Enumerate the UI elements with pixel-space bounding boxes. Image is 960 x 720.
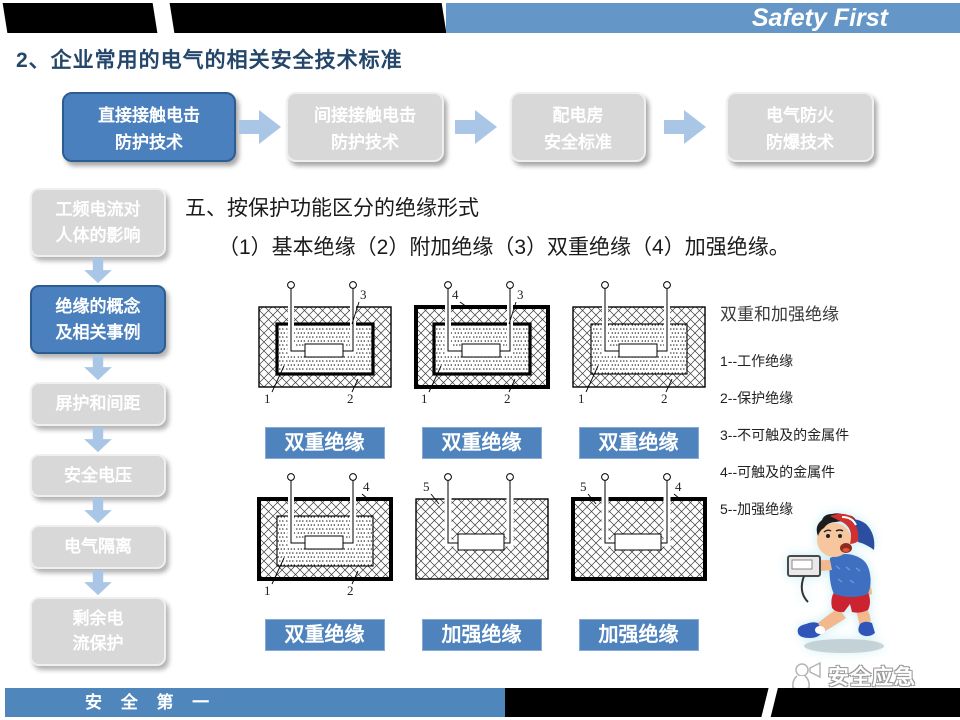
insulation-cross-section: 4 1 2 bbox=[255, 471, 395, 599]
insulation-diagram-grid: 3 1 2 双重绝缘 4 3 bbox=[246, 279, 717, 663]
svg-text:1: 1 bbox=[421, 391, 428, 406]
svg-text:1: 1 bbox=[578, 391, 585, 406]
sidebar-nav: 工频电流对 人体的影响 绝缘的概念 及相关事例 屏护和间距 安全电压 电气隔离 bbox=[30, 188, 166, 666]
header-black-bar-left bbox=[3, 3, 158, 33]
diagram-double-insulation-4: 4 1 2 双重绝缘 bbox=[246, 471, 403, 663]
section-heading: 五、按保护功能区分的绝缘形式 bbox=[185, 192, 479, 222]
legend-item: 2--保护绝缘 bbox=[720, 388, 849, 408]
sidebar-item-electrical-isolation[interactable]: 电气隔离 bbox=[30, 525, 166, 569]
diagram-caption: 双重绝缘 bbox=[422, 427, 542, 459]
flow-step-direct-contact[interactable]: 直接接触电击 防护技术 bbox=[62, 92, 236, 162]
flow-step-indirect-contact[interactable]: 间接接触电击 防护技术 bbox=[286, 92, 444, 162]
flow-arrow-icon bbox=[444, 108, 510, 146]
flow-arrow-icon bbox=[236, 108, 286, 146]
diagram-reinforced-insulation-1: 5 加强绝缘 bbox=[403, 471, 560, 663]
diagram-caption: 双重绝缘 bbox=[579, 427, 699, 459]
svg-text:4: 4 bbox=[363, 479, 370, 494]
svg-text:4: 4 bbox=[675, 479, 682, 494]
sidebar-item-residual-current[interactable]: 剩余电 流保护 bbox=[30, 597, 166, 666]
svg-text:5: 5 bbox=[580, 479, 587, 494]
sidebar-item-safe-voltage[interactable]: 安全电压 bbox=[30, 454, 166, 498]
legend-item: 4--可触及的金属件 bbox=[720, 462, 849, 482]
diagram-double-insulation-1: 3 1 2 双重绝缘 bbox=[246, 279, 403, 471]
diagram-double-insulation-2: 4 3 1 2 双重绝缘 bbox=[403, 279, 560, 471]
flow-arrow-icon bbox=[646, 108, 726, 146]
sidebar-item-shielding-clearance[interactable]: 屏护和间距 bbox=[30, 382, 166, 426]
insulation-legend: 双重和加强绝缘 1--工作绝缘 2--保护绝缘 3--不可触及的金属件 4--可… bbox=[720, 300, 849, 536]
diagram-caption: 双重绝缘 bbox=[265, 619, 385, 651]
top-flow: 直接接触电击 防护技术 间接接触电击 防护技术 配电房 安全标准 电气防火 防爆… bbox=[62, 92, 874, 162]
svg-text:2: 2 bbox=[504, 391, 511, 406]
sidebar-item-insulation-concept[interactable]: 绝缘的概念 及相关事例 bbox=[30, 285, 166, 354]
insulation-cross-section: 4 3 1 2 bbox=[412, 279, 552, 407]
section-subheading: （1）基本绝缘（2）附加绝缘（3）双重绝缘（4）加强绝缘。 bbox=[218, 231, 790, 261]
arrow-down-icon bbox=[81, 354, 115, 382]
flow-step-fire-explosion[interactable]: 电气防火 防爆技术 bbox=[726, 92, 874, 162]
brand-banner: Safety First bbox=[446, 3, 960, 33]
svg-text:2: 2 bbox=[347, 391, 354, 406]
arrow-down-icon bbox=[81, 426, 115, 454]
diagram-caption: 双重绝缘 bbox=[265, 427, 385, 459]
insulation-cross-section: 1 2 bbox=[569, 279, 709, 407]
legend-item: 3--不可触及的金属件 bbox=[720, 425, 849, 445]
sidebar-item-frequency-current[interactable]: 工频电流对 人体的影响 bbox=[30, 188, 166, 257]
footer-slogan-bar: 安 全 第 一 bbox=[5, 688, 505, 717]
svg-text:1: 1 bbox=[264, 391, 271, 406]
insulation-cross-section: 3 1 2 bbox=[255, 279, 395, 407]
diagram-reinforced-insulation-2: 5 4 加强绝缘 bbox=[560, 471, 717, 663]
svg-text:4: 4 bbox=[452, 287, 459, 302]
insulation-cross-section: 5 bbox=[412, 471, 552, 599]
arrow-down-icon bbox=[81, 569, 115, 597]
diagram-caption: 加强绝缘 bbox=[422, 619, 542, 651]
svg-text:3: 3 bbox=[517, 287, 524, 302]
legend-item: 1--工作绝缘 bbox=[720, 351, 849, 371]
svg-text:5: 5 bbox=[423, 479, 430, 494]
watermark-text: 安全应急 bbox=[828, 661, 916, 691]
flow-step-power-room[interactable]: 配电房 安全标准 bbox=[510, 92, 646, 162]
svg-text:2: 2 bbox=[347, 583, 354, 598]
footer-black-bar bbox=[505, 688, 960, 717]
running-boy-cartoon bbox=[786, 512, 898, 667]
svg-text:3: 3 bbox=[360, 287, 367, 302]
insulation-cross-section: 5 4 bbox=[569, 471, 709, 599]
svg-text:1: 1 bbox=[264, 583, 271, 598]
diagram-caption: 加强绝缘 bbox=[579, 619, 699, 651]
diagram-double-insulation-3: 1 2 双重绝缘 bbox=[560, 279, 717, 471]
header-black-bar-mid bbox=[170, 3, 447, 33]
slide: Safety First 2、企业常用的电气的相关安全技术标准 直接接触电击 防… bbox=[0, 0, 960, 720]
svg-text:2: 2 bbox=[661, 391, 668, 406]
legend-title: 双重和加强绝缘 bbox=[720, 300, 849, 325]
arrow-down-icon bbox=[81, 497, 115, 525]
arrow-down-icon bbox=[81, 257, 115, 285]
page-title: 2、企业常用的电气的相关安全技术标准 bbox=[16, 44, 403, 74]
